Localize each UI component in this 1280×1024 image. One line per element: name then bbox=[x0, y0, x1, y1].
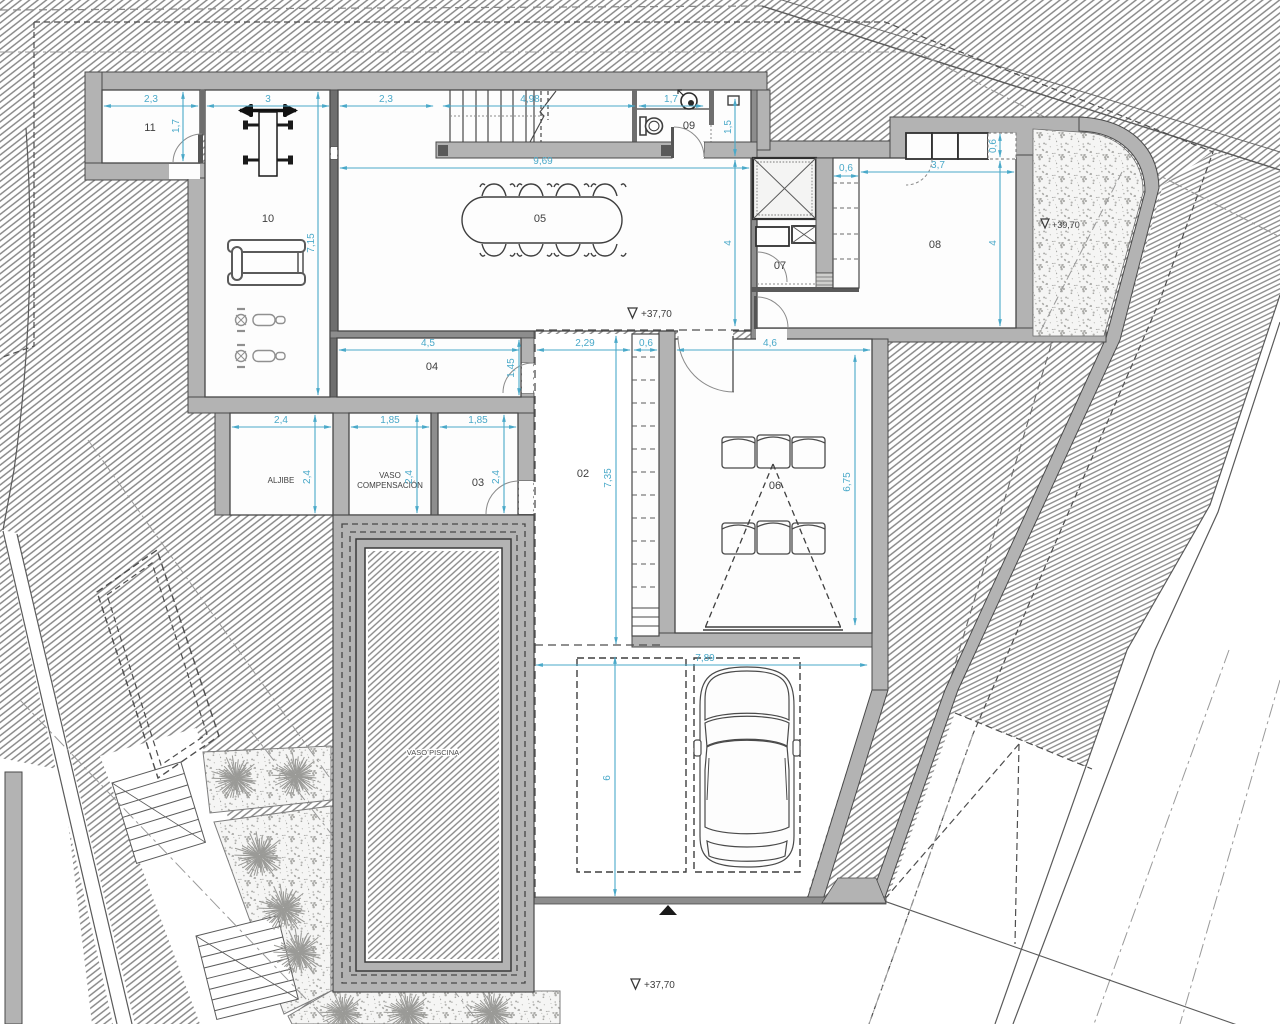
svg-text:4: 4 bbox=[988, 240, 999, 246]
svg-text:+39,70: +39,70 bbox=[1052, 220, 1080, 230]
svg-text:VASO PISCINA: VASO PISCINA bbox=[407, 748, 459, 757]
svg-text:9,69: 9,69 bbox=[533, 156, 553, 167]
svg-text:1,85: 1,85 bbox=[468, 415, 488, 426]
svg-text:03: 03 bbox=[472, 477, 484, 489]
svg-text:08: 08 bbox=[929, 239, 941, 251]
svg-text:2,4: 2,4 bbox=[491, 470, 502, 484]
svg-text:2,4: 2,4 bbox=[302, 470, 313, 484]
svg-text:3: 3 bbox=[265, 94, 271, 105]
svg-text:6,75: 6,75 bbox=[842, 472, 853, 492]
svg-text:1,5: 1,5 bbox=[723, 120, 734, 134]
svg-text:05: 05 bbox=[534, 213, 546, 225]
svg-text:0,6: 0,6 bbox=[839, 163, 853, 174]
svg-text:7,35: 7,35 bbox=[603, 468, 614, 488]
svg-text:2,29: 2,29 bbox=[575, 338, 595, 349]
svg-text:7,89: 7,89 bbox=[695, 653, 715, 664]
svg-text:1,7: 1,7 bbox=[171, 119, 182, 133]
svg-text:4: 4 bbox=[723, 240, 734, 246]
svg-text:11: 11 bbox=[144, 122, 155, 134]
svg-text:02: 02 bbox=[577, 468, 589, 480]
svg-text:06: 06 bbox=[769, 480, 781, 492]
svg-text:3,7: 3,7 bbox=[931, 160, 945, 171]
svg-text:09: 09 bbox=[683, 120, 695, 132]
svg-text:07: 07 bbox=[774, 260, 786, 272]
svg-text:1,45: 1,45 bbox=[506, 358, 517, 378]
svg-text:6: 6 bbox=[602, 775, 613, 781]
svg-text:2,4: 2,4 bbox=[274, 415, 288, 426]
svg-text:04: 04 bbox=[426, 361, 438, 373]
svg-text:+37,70: +37,70 bbox=[641, 309, 672, 320]
svg-text:4,98: 4,98 bbox=[520, 94, 540, 105]
svg-text:4,6: 4,6 bbox=[763, 338, 777, 349]
svg-text:4,5: 4,5 bbox=[421, 338, 435, 349]
svg-text:2,3: 2,3 bbox=[144, 94, 158, 105]
svg-text:VASO: VASO bbox=[379, 471, 401, 480]
svg-text:7,15: 7,15 bbox=[306, 233, 317, 253]
svg-text:2,3: 2,3 bbox=[379, 94, 393, 105]
svg-text:1,7: 1,7 bbox=[664, 94, 678, 105]
svg-text:+37,70: +37,70 bbox=[644, 980, 675, 991]
svg-text:0,6: 0,6 bbox=[639, 338, 653, 349]
svg-text:0,6: 0,6 bbox=[988, 139, 999, 153]
svg-text:10: 10 bbox=[262, 213, 274, 225]
svg-text:2,4: 2,4 bbox=[404, 470, 415, 484]
svg-text:1,85: 1,85 bbox=[380, 415, 400, 426]
svg-text:ALJIBE: ALJIBE bbox=[268, 476, 295, 485]
